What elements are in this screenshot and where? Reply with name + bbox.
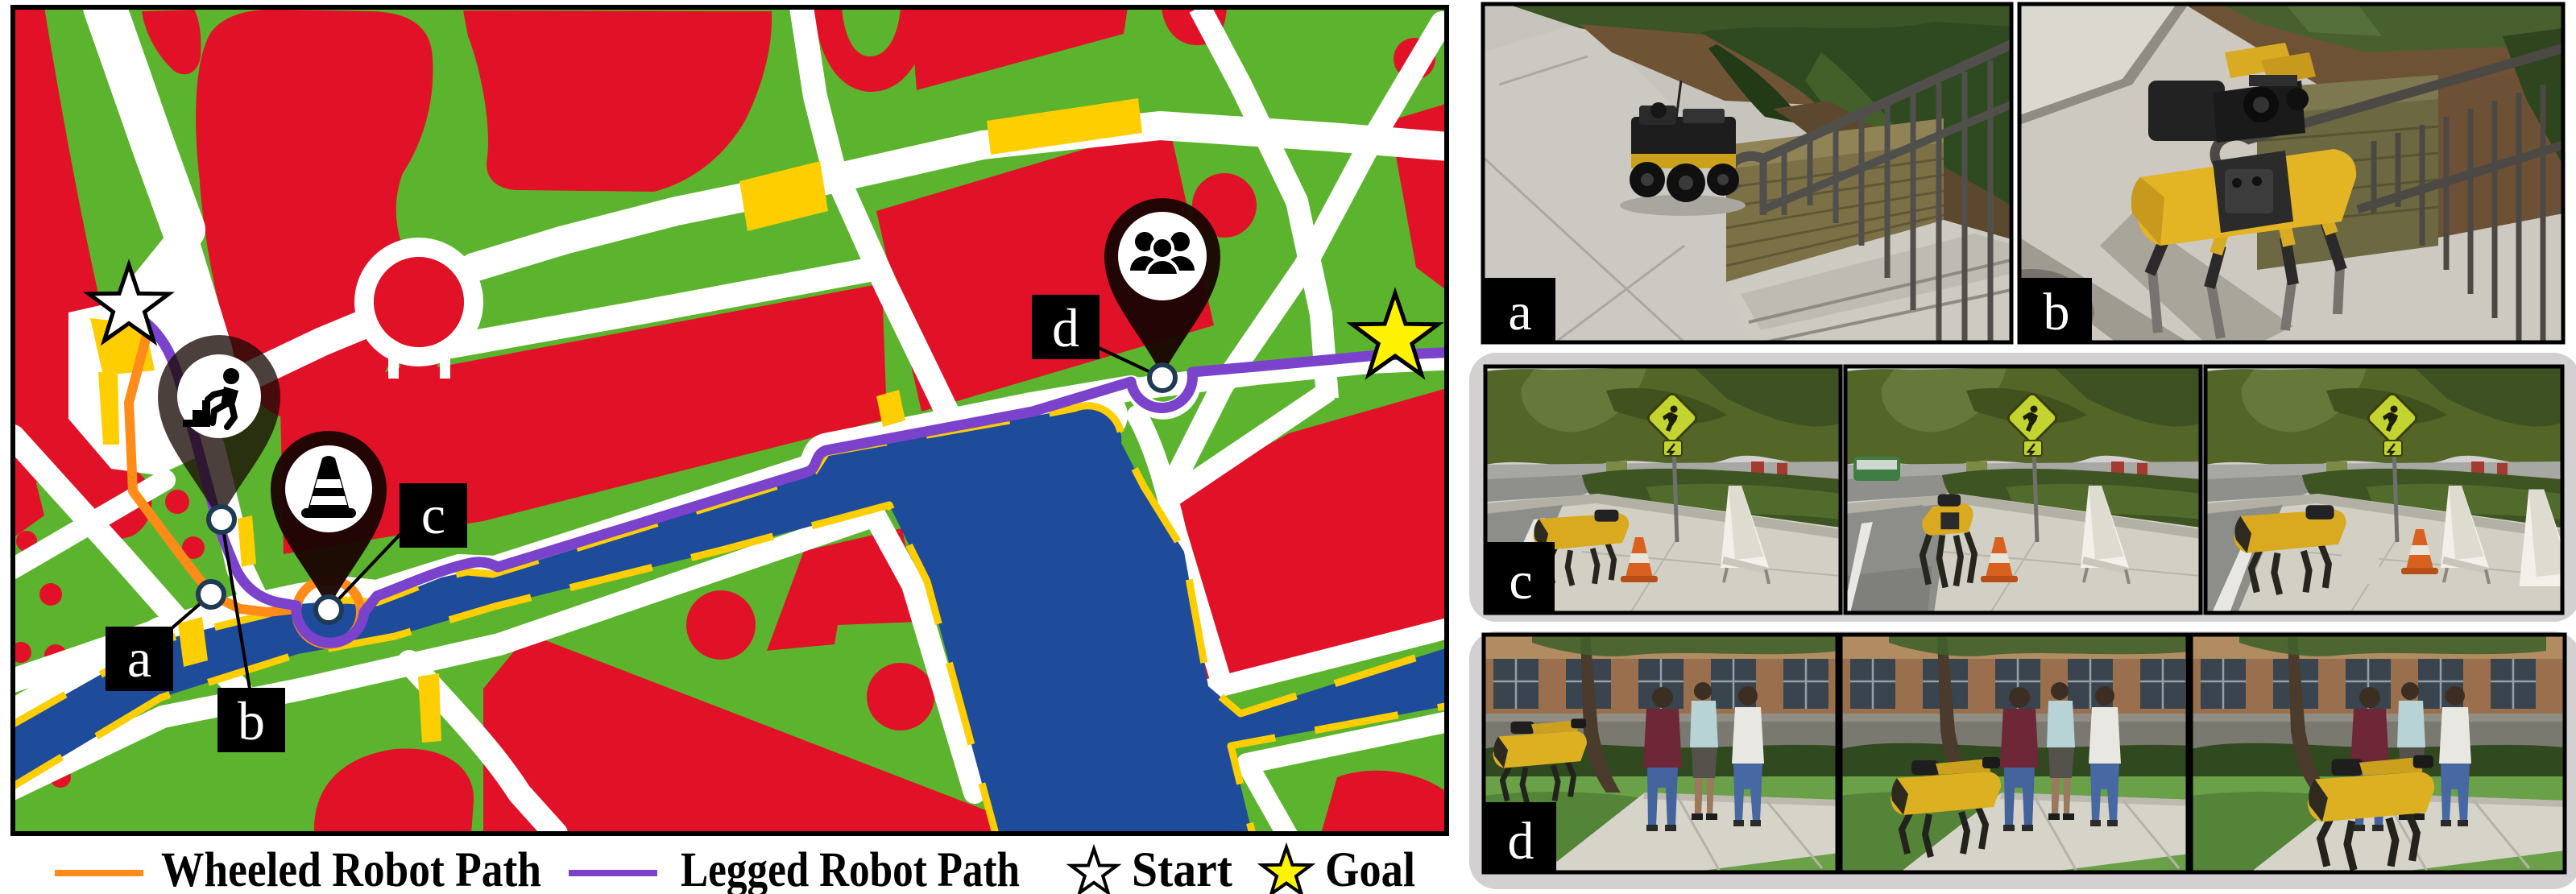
svg-text:d: d [1508, 812, 1534, 871]
svg-text:a: a [127, 627, 151, 689]
svg-text:b: b [2044, 283, 2070, 341]
svg-text:Goal: Goal [1325, 843, 1415, 894]
svg-text:Legged Robot Path: Legged Robot Path [681, 843, 1020, 894]
svg-text:c: c [1509, 552, 1532, 610]
svg-text:c: c [421, 484, 445, 545]
svg-text:Wheeled Robot Path: Wheeled Robot Path [161, 843, 541, 894]
svg-text:Start: Start [1132, 843, 1233, 894]
svg-text:b: b [238, 690, 265, 751]
svg-text:a: a [1508, 283, 1531, 341]
svg-text:d: d [1052, 297, 1079, 358]
